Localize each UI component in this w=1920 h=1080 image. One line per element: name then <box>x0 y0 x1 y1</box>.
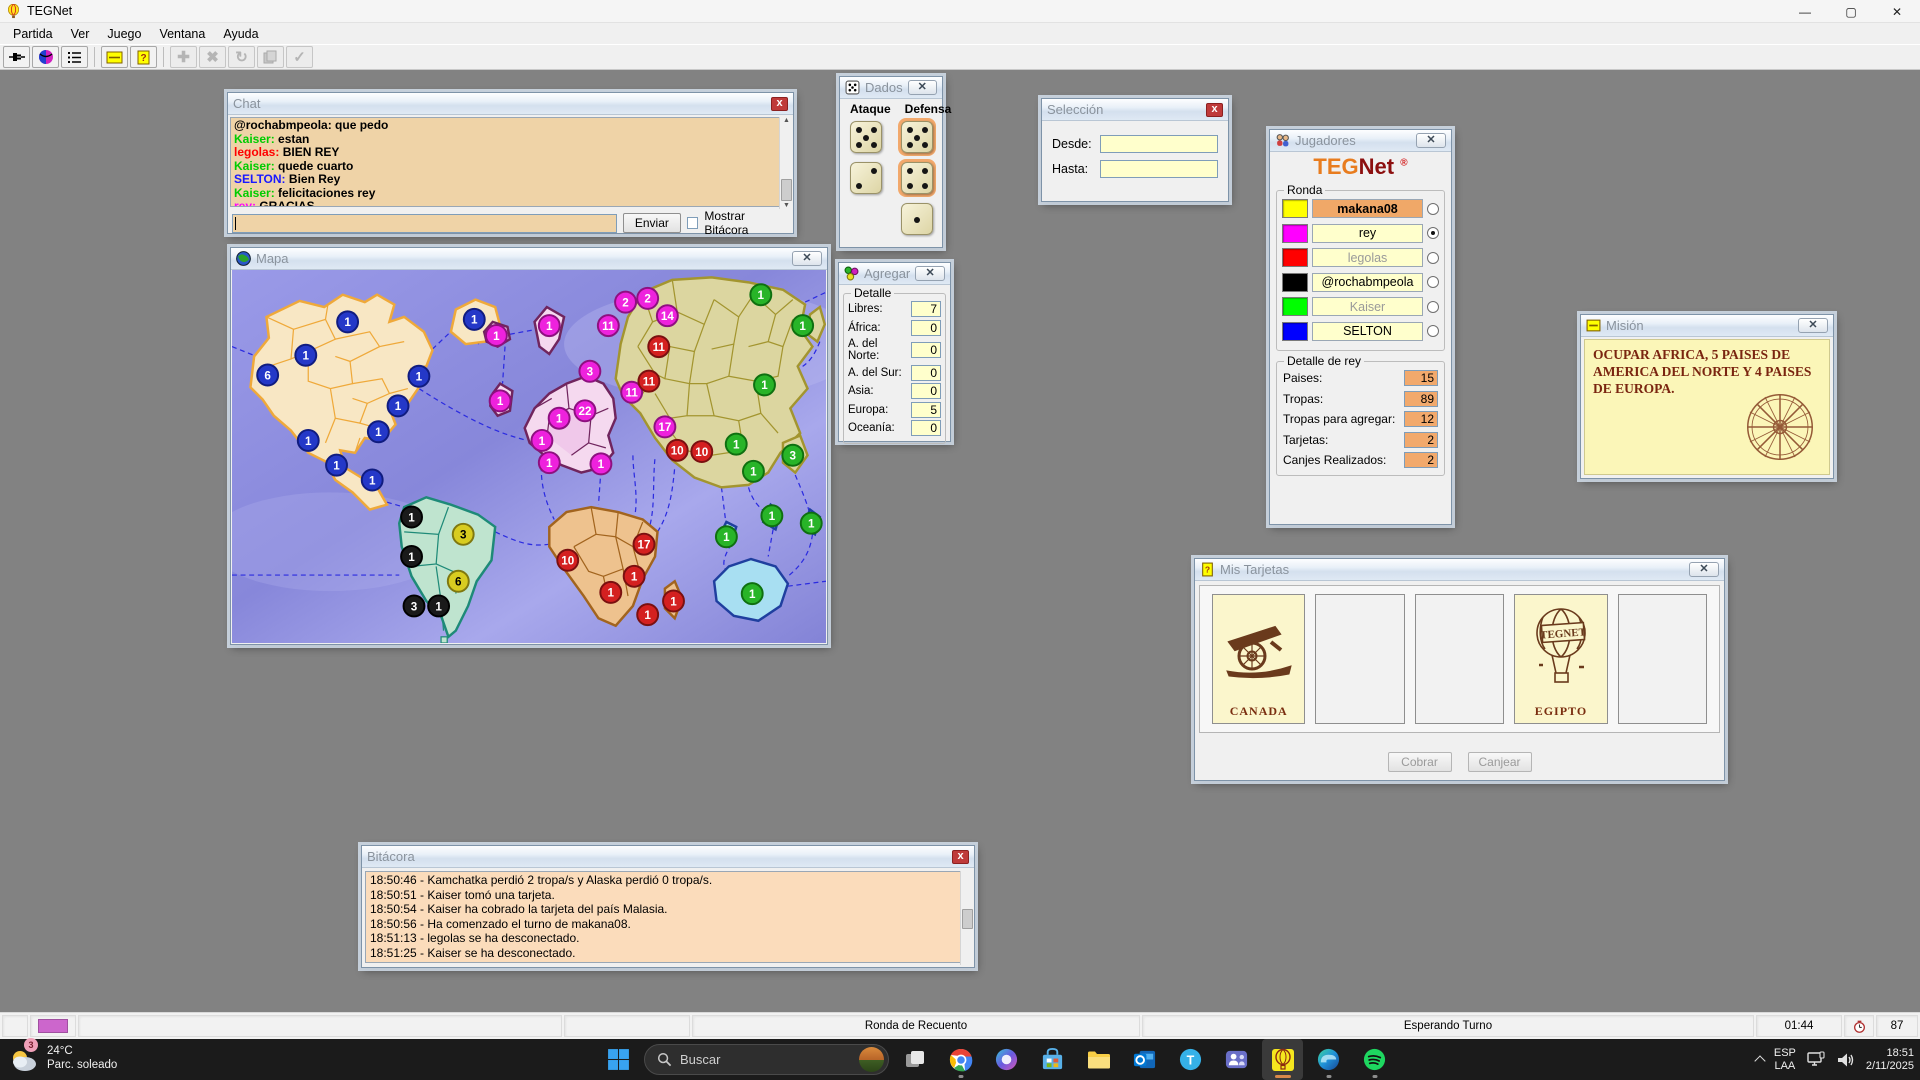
dice-icon <box>845 80 860 95</box>
country-card[interactable]: CANADA <box>1212 594 1305 724</box>
army-marker-legolas[interactable]: 1 <box>663 591 684 612</box>
x-icon: ✖ <box>206 50 219 65</box>
outlook-icon <box>1132 1047 1157 1072</box>
toolbar-separator <box>94 47 95 67</box>
player-radio[interactable] <box>1427 252 1439 264</box>
player-radio[interactable] <box>1427 301 1439 313</box>
spotify-button[interactable] <box>1354 1039 1395 1080</box>
tegnet-taskbar-button[interactable] <box>1262 1039 1303 1080</box>
chat-titlebar[interactable]: Chat x <box>228 93 793 115</box>
svg-text:1: 1 <box>546 320 553 333</box>
army-marker-rey[interactable]: 1 <box>486 325 507 346</box>
add-troops-window: Agregar ✕ Detalle Libres:7África:0A. del… <box>838 262 951 442</box>
defense-dice-column <box>895 118 938 238</box>
mission-close-icon[interactable]: ✕ <box>1798 318 1828 333</box>
running-indicator <box>1326 1075 1331 1078</box>
search-box[interactable]: Buscar <box>644 1044 889 1075</box>
svg-text:1: 1 <box>546 457 553 470</box>
cards-button[interactable] <box>101 46 128 68</box>
people-icon <box>1275 133 1290 148</box>
svg-text:1: 1 <box>608 587 615 600</box>
army-marker-SELTON[interactable]: 1 <box>408 366 429 387</box>
take-card-button <box>257 46 284 68</box>
mission-titlebar[interactable]: Misión ✕ <box>1581 315 1833 337</box>
toolbar: ? ✚ ✖ ↻ ✓ <box>0 44 1920 70</box>
check-icon: ✓ <box>293 50 306 65</box>
show-log-label: Mostrar Bitácora <box>704 209 789 237</box>
network-icon[interactable] <box>1806 1051 1826 1069</box>
note-icon <box>1586 318 1601 333</box>
taskbar: 3 24°C Parc. soleado Buscar <box>0 1039 1920 1080</box>
chat-title: Chat <box>233 96 766 111</box>
status-clock-cell <box>1844 1015 1874 1037</box>
edge-button[interactable] <box>1308 1039 1349 1080</box>
army-marker-Kaiser[interactable]: 1 <box>743 461 764 482</box>
svg-text:3: 3 <box>411 600 418 613</box>
map-title: Mapa <box>256 251 787 266</box>
scroll-thumb[interactable] <box>781 179 792 201</box>
menu-item-ver[interactable]: Ver <box>62 25 99 43</box>
game-map[interactable]: 1161111111113136111312211122141111171111… <box>232 270 826 643</box>
chat-message: SELTON: Bien Rey <box>234 173 787 187</box>
player-row: SELTON <box>1282 322 1439 341</box>
army-marker-rey[interactable]: 14 <box>657 305 678 326</box>
my-cards-titlebar[interactable]: ? Mis Tarjetas ✕ <box>1195 559 1724 581</box>
map-close-icon[interactable]: ✕ <box>792 251 822 266</box>
exchange-button[interactable]: Canjear <box>1468 752 1532 772</box>
country-card[interactable]: TEGNET EGIPTO <box>1514 594 1607 724</box>
army-marker-rey[interactable]: 2 <box>637 288 658 309</box>
players-title: Jugadores <box>1295 133 1411 148</box>
player-name: rey <box>1312 224 1423 243</box>
add-row-label: A. del Norte: <box>848 338 911 362</box>
army-marker-SELTON[interactable]: 1 <box>295 345 316 366</box>
army-marker-SELTON[interactable]: 1 <box>368 421 389 442</box>
log-entry: 18:51:13 - legolas se ha desconectado. <box>370 931 966 946</box>
army-marker-legolas[interactable]: 11 <box>638 371 659 392</box>
spotify-icon <box>1362 1047 1387 1072</box>
close-button[interactable]: ✕ <box>1874 0 1920 23</box>
detail-label: Tarjetas: <box>1283 433 1328 447</box>
folder-icon <box>1086 1047 1112 1073</box>
die-face-5 <box>898 118 936 156</box>
svg-text:11: 11 <box>626 387 639 400</box>
svg-text:1: 1 <box>493 330 500 343</box>
card-country-name: CANADA <box>1230 704 1288 719</box>
empty-card-slot[interactable] <box>1315 594 1404 724</box>
add-troops-title: Agregar <box>864 266 910 281</box>
chat-scrollbar[interactable]: ▲ ▼ <box>779 117 793 209</box>
tegnet-balloon-icon <box>1271 1048 1295 1072</box>
army-marker-legolas[interactable]: 11 <box>648 336 669 357</box>
teams-work-button[interactable] <box>1216 1039 1257 1080</box>
army-marker-legolas[interactable]: 10 <box>557 550 578 571</box>
maximize-button[interactable]: ▢ <box>1828 0 1874 23</box>
weather-temp: 24°C <box>47 1044 117 1058</box>
army-marker-Kaiser[interactable]: 1 <box>792 315 813 336</box>
army-marker-makana08[interactable]: 3 <box>453 524 474 545</box>
army-marker-Kaiser[interactable]: 1 <box>716 526 737 547</box>
my-cards-title: Mis Tarjetas <box>1220 562 1684 577</box>
card-country-name: EGIPTO <box>1535 704 1587 719</box>
menu-item-juego[interactable]: Juego <box>98 25 150 43</box>
players-titlebar[interactable]: Jugadores ✕ <box>1270 130 1451 152</box>
svg-text:1: 1 <box>369 474 376 487</box>
log-entry-list: 18:50:46 - Kamchatka perdió 2 tropa/s y … <box>365 871 971 963</box>
player-radio[interactable] <box>1427 325 1439 337</box>
army-marker-SELTON[interactable]: 1 <box>337 311 358 332</box>
menu-item-ayuda[interactable]: Ayuda <box>214 25 267 43</box>
clock-icon <box>1853 1020 1866 1033</box>
add-row-value: 0 <box>911 320 941 336</box>
status-counter: 87 <box>1876 1015 1918 1037</box>
card-icon <box>106 51 123 64</box>
die-face-1 <box>898 200 936 238</box>
players-button[interactable] <box>32 46 59 68</box>
windows-logo-icon <box>606 1047 631 1072</box>
army-marker-legolas[interactable]: 1 <box>637 604 658 625</box>
army-marker-@rochabmpeola[interactable]: 1 <box>401 507 422 528</box>
add-row-value: 0 <box>911 342 941 358</box>
cannon-icon <box>1219 601 1299 697</box>
selection-field-input[interactable] <box>1100 135 1218 153</box>
add-row-label: Libres: <box>848 303 883 315</box>
army-marker-rey[interactable]: 22 <box>575 400 596 421</box>
svg-text:1: 1 <box>769 510 776 523</box>
status-cell <box>78 1015 562 1037</box>
army-marker-legolas[interactable]: 1 <box>624 566 645 587</box>
player-name: @rochabmpeola <box>1312 273 1423 292</box>
player-detail-group-label: Detalle de rey <box>1284 354 1364 368</box>
svg-text:1: 1 <box>808 517 815 530</box>
scroll-down-icon[interactable]: ▼ <box>783 202 790 209</box>
chrome-button[interactable] <box>940 1039 981 1080</box>
attack-label: Ataque <box>850 102 891 116</box>
tray-expand-icon[interactable] <box>1754 1055 1765 1066</box>
collect-button[interactable]: Cobrar <box>1388 752 1452 772</box>
selection-field-input[interactable] <box>1100 160 1218 178</box>
army-marker-SELTON[interactable]: 1 <box>298 430 319 451</box>
chat-message-list: @rochabmpeola: que pedoKaiser: estanlego… <box>230 117 791 207</box>
add-row-value: 0 <box>911 383 941 399</box>
svg-text:1: 1 <box>333 459 340 472</box>
globe-icon <box>236 251 251 266</box>
log-scrollbar[interactable] <box>960 871 974 965</box>
chat-message: @rochabmpeola: que pedo <box>234 119 787 133</box>
search-placeholder: Buscar <box>680 1052 851 1067</box>
army-marker-rey[interactable]: 11 <box>598 315 619 336</box>
regroup-button: ↻ <box>228 46 255 68</box>
weather-condition: Parc. soleado <box>47 1058 117 1072</box>
dice-window: Dados ✕ Ataque Defensa <box>839 76 943 248</box>
player-name: makana08 <box>1312 199 1423 218</box>
active-window-indicator <box>1275 1075 1291 1078</box>
svg-text:6: 6 <box>455 576 462 589</box>
svg-text:1: 1 <box>416 371 423 384</box>
selection-title: Selección <box>1047 102 1201 117</box>
text-caret <box>235 217 236 230</box>
svg-text:1: 1 <box>539 435 546 448</box>
detail-label: Canjes Realizados: <box>1283 453 1386 467</box>
army-marker-Kaiser[interactable]: 1 <box>742 583 763 604</box>
army-marker-legolas[interactable]: 10 <box>691 441 712 462</box>
my-cards-close-icon[interactable]: ✕ <box>1689 562 1719 577</box>
svg-text:11: 11 <box>643 375 656 388</box>
volume-icon[interactable] <box>1836 1051 1856 1069</box>
chat-window: Chat x @rochabmpeola: que pedoKaiser: es… <box>227 92 794 234</box>
army-marker-rey[interactable]: 1 <box>539 452 560 473</box>
svg-text:1: 1 <box>761 379 768 392</box>
add-troops-titlebar[interactable]: Agregar ✕ <box>839 263 950 285</box>
plug-icon <box>8 50 26 64</box>
svg-text:10: 10 <box>671 445 684 458</box>
army-marker-SELTON[interactable]: 1 <box>388 395 409 416</box>
add-row-label: A. del Sur: <box>848 367 902 379</box>
player-color-swatch <box>1282 297 1308 316</box>
army-marker-SELTON[interactable]: 6 <box>257 364 278 385</box>
dice-title: Dados <box>865 80 903 95</box>
screen: TEGNet — ▢ ✕ PartidaVerJuegoVentanaAyuda <box>0 0 1920 1080</box>
svg-text:?: ? <box>140 53 146 64</box>
send-button[interactable]: Enviar <box>623 213 681 233</box>
army-marker-Kaiser[interactable]: 1 <box>750 284 771 305</box>
chrome-icon <box>948 1047 974 1073</box>
player-color-swatch <box>1282 322 1308 341</box>
die-face-4 <box>898 159 936 197</box>
svg-text:2: 2 <box>622 296 629 309</box>
player-row: makana08 <box>1282 199 1439 218</box>
log-entry: 18:50:56 - Ha comenzado el turno de maka… <box>370 917 966 932</box>
add-row-value: 7 <box>911 301 941 317</box>
refresh-icon: ↻ <box>235 50 248 65</box>
file-explorer-button[interactable] <box>1078 1039 1119 1080</box>
chat-message: rey: GRACIAS <box>234 200 787 207</box>
log-titlebar[interactable]: Bitácora x <box>362 846 974 868</box>
round-group-label: Ronda <box>1284 183 1325 197</box>
chat-message: Kaiser: felicitaciones rey <box>234 187 787 201</box>
map-window: Mapa ✕ <box>230 247 828 645</box>
player-name: legolas <box>1312 248 1423 267</box>
svg-text:1: 1 <box>408 551 415 564</box>
menu-item-ventana[interactable]: Ventana <box>150 25 214 43</box>
copilot-icon <box>994 1047 1019 1072</box>
status-round: Ronda de Recuento <box>692 1015 1140 1037</box>
player-color-swatch <box>1282 199 1308 218</box>
detail-label: Paises: <box>1283 371 1322 385</box>
army-marker-Kaiser[interactable]: 1 <box>754 374 775 395</box>
players-window: Jugadores ✕ TEGNet ® Ronda makana08reyle… <box>1269 129 1452 525</box>
language-indicator[interactable]: ESP LAA <box>1774 1047 1796 1073</box>
chat-message: legolas: BIEN REY <box>234 146 787 160</box>
army-marker-rey[interactable]: 1 <box>490 390 511 411</box>
search-icon <box>657 1052 672 1067</box>
svg-text:1: 1 <box>305 435 312 448</box>
mission-icon: ? <box>137 50 150 65</box>
copilot-button[interactable] <box>986 1039 1027 1080</box>
menu-item-partida[interactable]: Partida <box>4 25 62 43</box>
player-radio[interactable] <box>1427 203 1439 215</box>
svg-text:1: 1 <box>435 600 442 613</box>
svg-text:17: 17 <box>637 538 650 551</box>
svg-text:1: 1 <box>758 289 765 302</box>
svg-text:17: 17 <box>658 421 671 434</box>
detail-label: Tropas: <box>1283 392 1323 406</box>
detail-value: 2 <box>1404 432 1438 448</box>
selection-field-label: Desde: <box>1052 137 1100 151</box>
attack-button: ✖ <box>199 46 226 68</box>
task-view-icon <box>903 1048 927 1072</box>
army-marker-rey[interactable]: 1 <box>590 453 611 474</box>
copy-icon <box>263 50 278 64</box>
log-entry: 18:50:51 - Kaiser tomó una tarjeta. <box>370 888 966 903</box>
empty-card-slot[interactable] <box>1618 594 1707 724</box>
svg-text:10: 10 <box>561 555 574 568</box>
mission-button[interactable]: ? <box>130 46 157 68</box>
detail-value: 2 <box>1404 452 1438 468</box>
running-indicator <box>1372 1075 1377 1078</box>
store-icon <box>1040 1047 1065 1072</box>
player-row: legolas <box>1282 248 1439 267</box>
status-timer: 01:44 <box>1756 1015 1842 1037</box>
army-marker-SELTON[interactable]: 1 <box>464 309 485 330</box>
dice-titlebar[interactable]: Dados ✕ <box>840 77 942 99</box>
svg-text:1: 1 <box>750 466 757 479</box>
empty-card-slot[interactable] <box>1415 594 1504 724</box>
globe-icon <box>38 49 54 65</box>
add-row-label: África: <box>848 322 881 334</box>
detail-value: 15 <box>1404 370 1438 386</box>
running-indicator <box>958 1075 963 1078</box>
svg-text:1: 1 <box>344 316 351 329</box>
outlook-button[interactable] <box>1124 1039 1165 1080</box>
player-color-swatch <box>1282 248 1308 267</box>
mdi-desktop: Chat x @rochabmpeola: que pedoKaiser: es… <box>0 70 1920 1012</box>
teams-icon <box>1224 1047 1249 1072</box>
svg-text:?: ? <box>1205 565 1210 575</box>
army-marker-legolas[interactable]: 1 <box>600 582 621 603</box>
army-marker-rey[interactable]: 17 <box>654 416 675 437</box>
army-marker-Kaiser[interactable]: 1 <box>801 513 822 534</box>
status-bar: Ronda de Recuento Esperando Turno 01:44 … <box>0 1012 1920 1039</box>
teams-personal-button[interactable]: T <box>1170 1039 1211 1080</box>
defense-label: Defensa <box>905 102 952 116</box>
svg-text:1: 1 <box>598 458 605 471</box>
log-entry: 18:50:46 - Kamchatka perdió 2 tropa/s y … <box>370 873 966 888</box>
start-button[interactable] <box>598 1039 639 1080</box>
add-row-label: Europa: <box>848 404 888 416</box>
player-name: Kaiser <box>1312 297 1423 316</box>
players-close-icon[interactable]: ✕ <box>1416 133 1446 148</box>
plus-icon: ✚ <box>177 50 190 65</box>
svg-text:1: 1 <box>375 426 382 439</box>
add-row-value: 0 <box>911 420 941 436</box>
status-player-color <box>30 1015 76 1037</box>
army-marker-makana08[interactable]: 6 <box>448 571 469 592</box>
my-cards-window: ? Mis Tarjetas ✕ CA <box>1194 558 1725 781</box>
army-marker-SELTON[interactable]: 1 <box>326 455 347 476</box>
player-radio[interactable] <box>1427 276 1439 288</box>
detail-label: Tropas para agregar: <box>1283 412 1395 426</box>
selection-close-icon[interactable]: x <box>1206 103 1223 117</box>
connect-button[interactable] <box>3 46 30 68</box>
weather-widget[interactable]: 3 24°C Parc. soleado <box>8 1042 117 1074</box>
minimize-button[interactable]: — <box>1782 0 1828 23</box>
army-marker-Kaiser[interactable]: 3 <box>782 445 803 466</box>
add-troops-close-icon[interactable]: ✕ <box>915 266 945 281</box>
chat-message: Kaiser: quede cuarto <box>234 160 787 174</box>
scroll-up-icon[interactable]: ▲ <box>783 117 790 124</box>
player-color-swatch <box>38 1019 68 1033</box>
svg-text:14: 14 <box>661 310 674 323</box>
army-marker-SELTON[interactable]: 1 <box>362 469 383 490</box>
map-titlebar[interactable]: Mapa ✕ <box>231 248 827 270</box>
svg-text:1: 1 <box>631 571 638 584</box>
status-cell <box>2 1015 28 1037</box>
chat-close-icon[interactable]: x <box>771 97 788 111</box>
status-state: Esperando Turno <box>1142 1015 1754 1037</box>
list-button[interactable] <box>61 46 88 68</box>
weather-alert-badge: 3 <box>24 1038 38 1052</box>
clock-widget[interactable]: 18:51 2/11/2025 <box>1866 1047 1914 1073</box>
log-title: Bitácora <box>367 849 947 864</box>
army-marker-rey[interactable]: 1 <box>531 430 552 451</box>
task-view-button[interactable] <box>894 1039 935 1080</box>
compass-rose-icon <box>1737 384 1823 470</box>
player-row: @rochabmpeola <box>1282 273 1439 292</box>
show-log-checkbox[interactable] <box>687 217 699 229</box>
army-marker-rey[interactable]: 3 <box>579 361 600 382</box>
log-entry: 18:50:54 - Kaiser ha cobrado la tarjeta … <box>370 902 966 917</box>
attack-dice-column <box>844 118 887 238</box>
army-marker-Kaiser[interactable]: 1 <box>761 505 782 526</box>
store-button[interactable] <box>1032 1039 1073 1080</box>
svg-text:1: 1 <box>749 588 756 601</box>
army-marker-rey[interactable]: 1 <box>539 315 560 336</box>
army-marker-legolas[interactable]: 17 <box>634 534 655 555</box>
army-marker-Kaiser[interactable]: 1 <box>726 434 747 455</box>
svg-text:1: 1 <box>670 595 677 608</box>
add-row-label: Oceanía: <box>848 422 895 434</box>
dice-close-icon[interactable]: ✕ <box>908 80 937 95</box>
selection-titlebar[interactable]: Selección x <box>1042 99 1228 121</box>
svg-text:1: 1 <box>723 531 730 544</box>
army-marker-@rochabmpeola[interactable]: 3 <box>404 595 425 616</box>
army-marker-@rochabmpeola[interactable]: 1 <box>428 595 449 616</box>
player-row: Kaiser <box>1282 297 1439 316</box>
card-icon: ? <box>1200 562 1215 577</box>
log-entry: 18:51:25 - Kaiser se ha desconectado. <box>370 946 966 961</box>
player-name: SELTON <box>1312 322 1423 341</box>
army-marker-@rochabmpeola[interactable]: 1 <box>401 546 422 567</box>
svg-text:1: 1 <box>733 438 740 451</box>
chat-input[interactable] <box>232 214 617 233</box>
add-row-value: 5 <box>911 402 941 418</box>
army-marker-legolas[interactable]: 10 <box>667 440 688 461</box>
chat-message: Kaiser: estan <box>234 133 787 147</box>
search-highlight-image[interactable] <box>859 1047 884 1072</box>
player-color-swatch <box>1282 273 1308 292</box>
army-marker-rey[interactable]: 2 <box>615 292 636 313</box>
army-marker-rey[interactable]: 1 <box>549 408 570 429</box>
player-row: rey <box>1282 224 1439 243</box>
svg-text:1: 1 <box>471 314 478 327</box>
svg-text:22: 22 <box>578 405 591 418</box>
selection-window: Selección x Desde:Hasta: <box>1041 98 1229 202</box>
player-radio[interactable] <box>1427 227 1439 239</box>
log-close-icon[interactable]: x <box>952 850 969 864</box>
tegnet-logo: TEGNet ® <box>1270 154 1451 180</box>
scroll-thumb[interactable] <box>962 909 973 929</box>
